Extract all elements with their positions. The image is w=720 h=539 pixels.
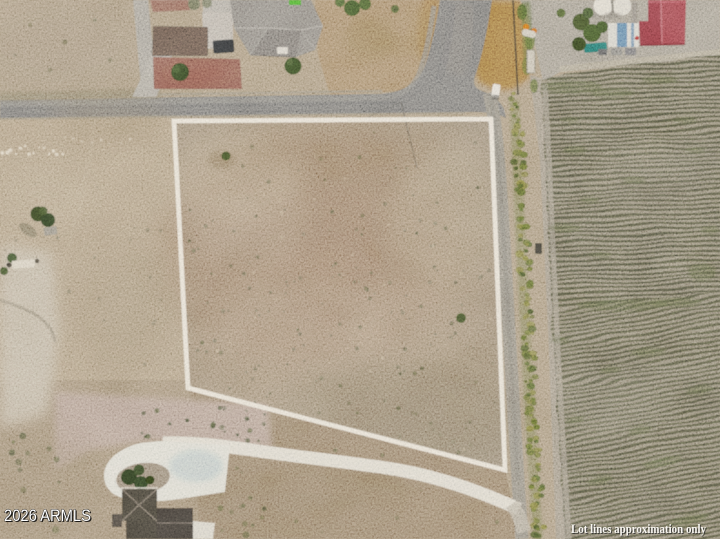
svg-text:2026 ARMLS: 2026 ARMLS — [4, 506, 91, 525]
svg-text:Lot lines approximation only: Lot lines approximation only — [571, 521, 706, 536]
